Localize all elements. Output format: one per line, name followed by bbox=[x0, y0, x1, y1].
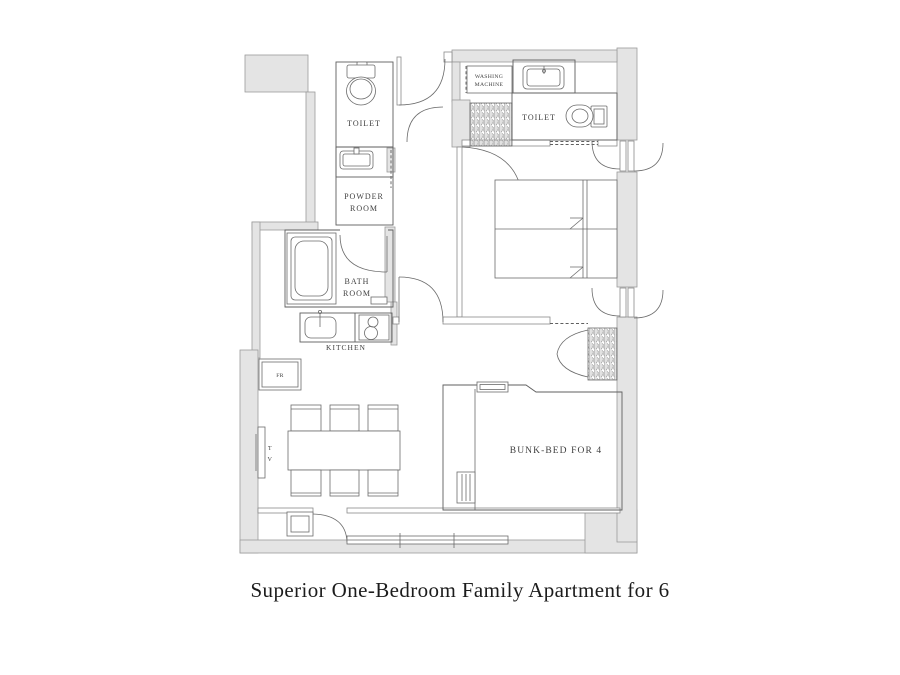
twin-beds bbox=[495, 180, 617, 278]
floor-plan-drawing: TOILET POWDER ROOM BATH ROOM bbox=[0, 0, 900, 560]
stove-icon bbox=[359, 315, 389, 340]
fridge-label: FR bbox=[276, 373, 284, 379]
sink-icon bbox=[340, 148, 373, 169]
kitchen-sink-icon bbox=[305, 310, 336, 338]
bath-room-label-1: BATH bbox=[345, 277, 370, 286]
toilet-room-top-right: TOILET bbox=[512, 60, 617, 140]
hall-closet bbox=[470, 103, 512, 146]
bedroom-right-door-lower bbox=[592, 288, 663, 318]
bedroom bbox=[462, 142, 617, 381]
washing-machine: WASHING MACHINE bbox=[466, 66, 512, 93]
tv: T V bbox=[256, 427, 273, 478]
washing-machine-label-2: MACHINE bbox=[475, 82, 504, 88]
dining-set bbox=[288, 405, 400, 496]
toilet-fixture-icon-2 bbox=[566, 105, 607, 127]
bath-room-label-2: ROOM bbox=[343, 289, 371, 298]
living-room-door bbox=[399, 277, 443, 322]
toilet-fixture-icon bbox=[347, 62, 376, 105]
washing-machine-label-1: WASHING bbox=[475, 74, 503, 80]
tv-label-2: V bbox=[268, 456, 273, 463]
powder-room-label-1: POWDER bbox=[344, 192, 384, 201]
plan-caption: Superior One-Bedroom Family Apartment fo… bbox=[10, 578, 900, 603]
kitchen: KITCHEN bbox=[300, 310, 392, 352]
tv-label-1: T bbox=[268, 445, 272, 452]
ladder-icon bbox=[457, 472, 475, 503]
bunk-bed-area: BUNK-BED FOR 4 bbox=[443, 382, 622, 510]
entrance-door bbox=[397, 57, 445, 142]
sink-icon-2 bbox=[523, 66, 564, 89]
floor-plan-page: TOILET POWDER ROOM BATH ROOM bbox=[0, 0, 900, 675]
bedroom-closet bbox=[550, 324, 617, 381]
powder-room-label-2: ROOM bbox=[350, 204, 378, 213]
bath-room: BATH ROOM bbox=[285, 230, 393, 307]
bathtub-icon bbox=[287, 233, 336, 304]
balcony-unit bbox=[287, 512, 313, 536]
bunk-bed-label: BUNK-BED FOR 4 bbox=[510, 446, 602, 456]
pillow-icon bbox=[477, 382, 508, 392]
kitchen-label: KITCHEN bbox=[326, 343, 366, 352]
fridge: FR bbox=[259, 359, 301, 390]
toilet-top-right-label: TOILET bbox=[522, 113, 556, 122]
toilet-top-left-label: TOILET bbox=[347, 119, 381, 128]
toilet-room-top-left: TOILET bbox=[336, 62, 393, 147]
powder-room: POWDER ROOM bbox=[336, 147, 393, 225]
dining-table bbox=[288, 431, 400, 470]
